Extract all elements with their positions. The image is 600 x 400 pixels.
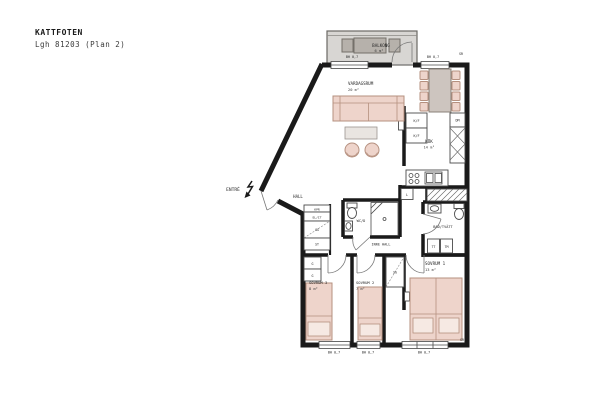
shower-area: [371, 203, 398, 236]
g1-label: G: [312, 262, 314, 266]
kpr-label: KPR: [314, 208, 320, 212]
bh-label-bed2: BH 0,7: [362, 351, 374, 355]
armchair-left: [345, 143, 359, 157]
vent-box-kitchen: [399, 121, 405, 130]
dining-table: [429, 69, 451, 112]
balcony-label: BALKONG: [372, 43, 390, 48]
sg-bed1-label: SG: [393, 271, 397, 275]
entrance-label: ENTRÉ: [226, 185, 240, 193]
shower-corner-ticks: [371, 203, 383, 215]
window-bedroom2: [357, 342, 380, 349]
bedroom3-area: 8 m²: [309, 287, 318, 291]
bedroom2-area: 7 m²: [356, 287, 365, 291]
window-bedroom3: [319, 342, 350, 349]
vent-box-bed1: [405, 292, 410, 301]
washer-label: TM: [445, 245, 449, 249]
entrance-arrow-icon: [245, 181, 253, 198]
bedroom1-area: 13 m²: [425, 268, 436, 272]
inner-hall-label: INRE HALL: [372, 243, 391, 247]
balcony-area: 6 m²: [375, 49, 384, 53]
pillow-right: [439, 318, 459, 333]
dining-set: [420, 69, 460, 112]
pillow-left: [413, 318, 433, 333]
bh-label-bed1: BH 0,7: [418, 351, 430, 355]
bath-door: [423, 214, 441, 234]
window-bedroom1: [402, 342, 448, 349]
hall-label: HALL: [293, 194, 303, 199]
shower-drain: [383, 218, 386, 221]
floor-plan-drawing: BALKONG 6 m²: [0, 0, 600, 400]
st-label: ST: [315, 243, 319, 247]
kitchen-label: KÖK: [425, 139, 433, 144]
living-label: VARDAGSRUM: [348, 81, 374, 86]
balcony: BALKONG 6 m²: [327, 31, 417, 65]
bh-label-bed3: BH 0,7: [328, 351, 340, 355]
linen-label: L: [406, 193, 408, 197]
armchair-right: [365, 143, 379, 157]
elit-label: EL/IT: [312, 215, 321, 219]
living-area: 20 m²: [348, 88, 359, 92]
bath-label: BAD/TVÄTT: [433, 224, 453, 229]
bedroom-2: SOVRUM 2 7 m²: [356, 255, 382, 340]
wc-label: WC/D: [357, 219, 366, 223]
entry-door: [261, 191, 278, 210]
bedroom1-door: [406, 255, 424, 273]
kitchen-area: 14 m²: [423, 146, 434, 150]
linen-closet: L: [401, 189, 413, 200]
bedroom-1: SG SOVRUM 1 13 m²: [386, 255, 462, 340]
bh-label-balcony: BH 0,7: [346, 55, 358, 59]
sr-label-bottom: SR: [460, 338, 465, 342]
bh-label-dining: BH 0,7: [427, 55, 439, 59]
freezer-label: K/F: [413, 134, 419, 138]
bath-toilet-bowl: [455, 209, 464, 220]
floor-plan-page: { "header": { "project": "KATTFOTEN", "a…: [0, 0, 600, 400]
dishwasher-label: DM: [455, 119, 459, 123]
bedroom3-label: SOVRUM 3: [309, 280, 327, 285]
living-room: VARDAGSRUM 20 m²: [333, 81, 404, 157]
wc-door: [353, 237, 370, 250]
sg-hall-label: SG: [315, 228, 319, 232]
window-living-balcony: [331, 62, 368, 69]
hall-closets: KPR EL/IT SG ST: [304, 205, 330, 250]
bedroom2-door: [357, 255, 375, 273]
sr-label-top: SR: [459, 52, 464, 56]
pillow-bed2: [360, 324, 380, 336]
wc-toilet-bowl: [348, 208, 357, 219]
fridge-label: K/F: [413, 119, 419, 123]
g2-label: G: [312, 274, 314, 278]
bedroom1-label: SOVRUM 1: [425, 261, 446, 266]
window-dining: [421, 62, 449, 69]
bathroom-laundry: TT TM BAD/TVÄTT: [423, 189, 467, 253]
balcony-chair-left: [342, 39, 353, 52]
pillow-bed3: [308, 322, 330, 336]
balcony-chair-right: [389, 39, 400, 52]
wall-entry-lower-diagonal: [278, 201, 303, 214]
bath-toilet-tank: [454, 204, 464, 209]
dryer-label: TT: [432, 245, 436, 249]
bedroom3-door: [328, 255, 346, 273]
bedroom-3: G G SOVRUM 3 8 m²: [304, 255, 346, 340]
kitchen: K/F K/F DM KÖK 14 m²: [399, 113, 466, 186]
bedroom2-label: SOVRUM 2: [356, 280, 374, 285]
coffee-table: [345, 127, 377, 139]
wall-upper-diagonal: [261, 64, 322, 191]
